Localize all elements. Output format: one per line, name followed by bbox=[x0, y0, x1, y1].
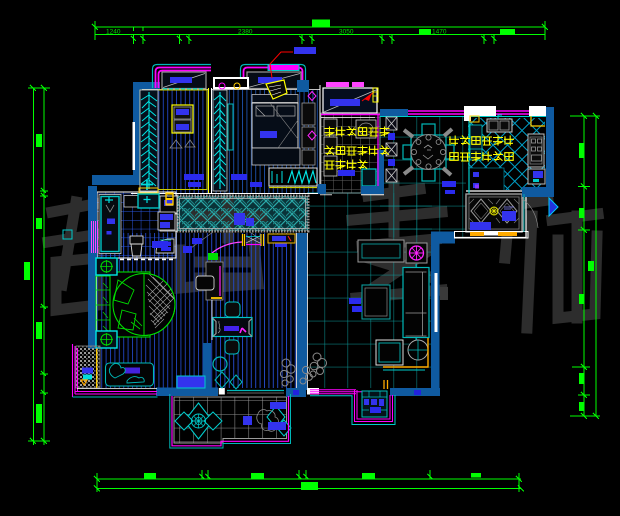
svg-text:1240: 1240 bbox=[106, 29, 121, 36]
svg-text:2380: 2380 bbox=[238, 29, 253, 36]
svg-text:1470: 1470 bbox=[432, 29, 447, 36]
svg-text:3050: 3050 bbox=[339, 29, 354, 36]
